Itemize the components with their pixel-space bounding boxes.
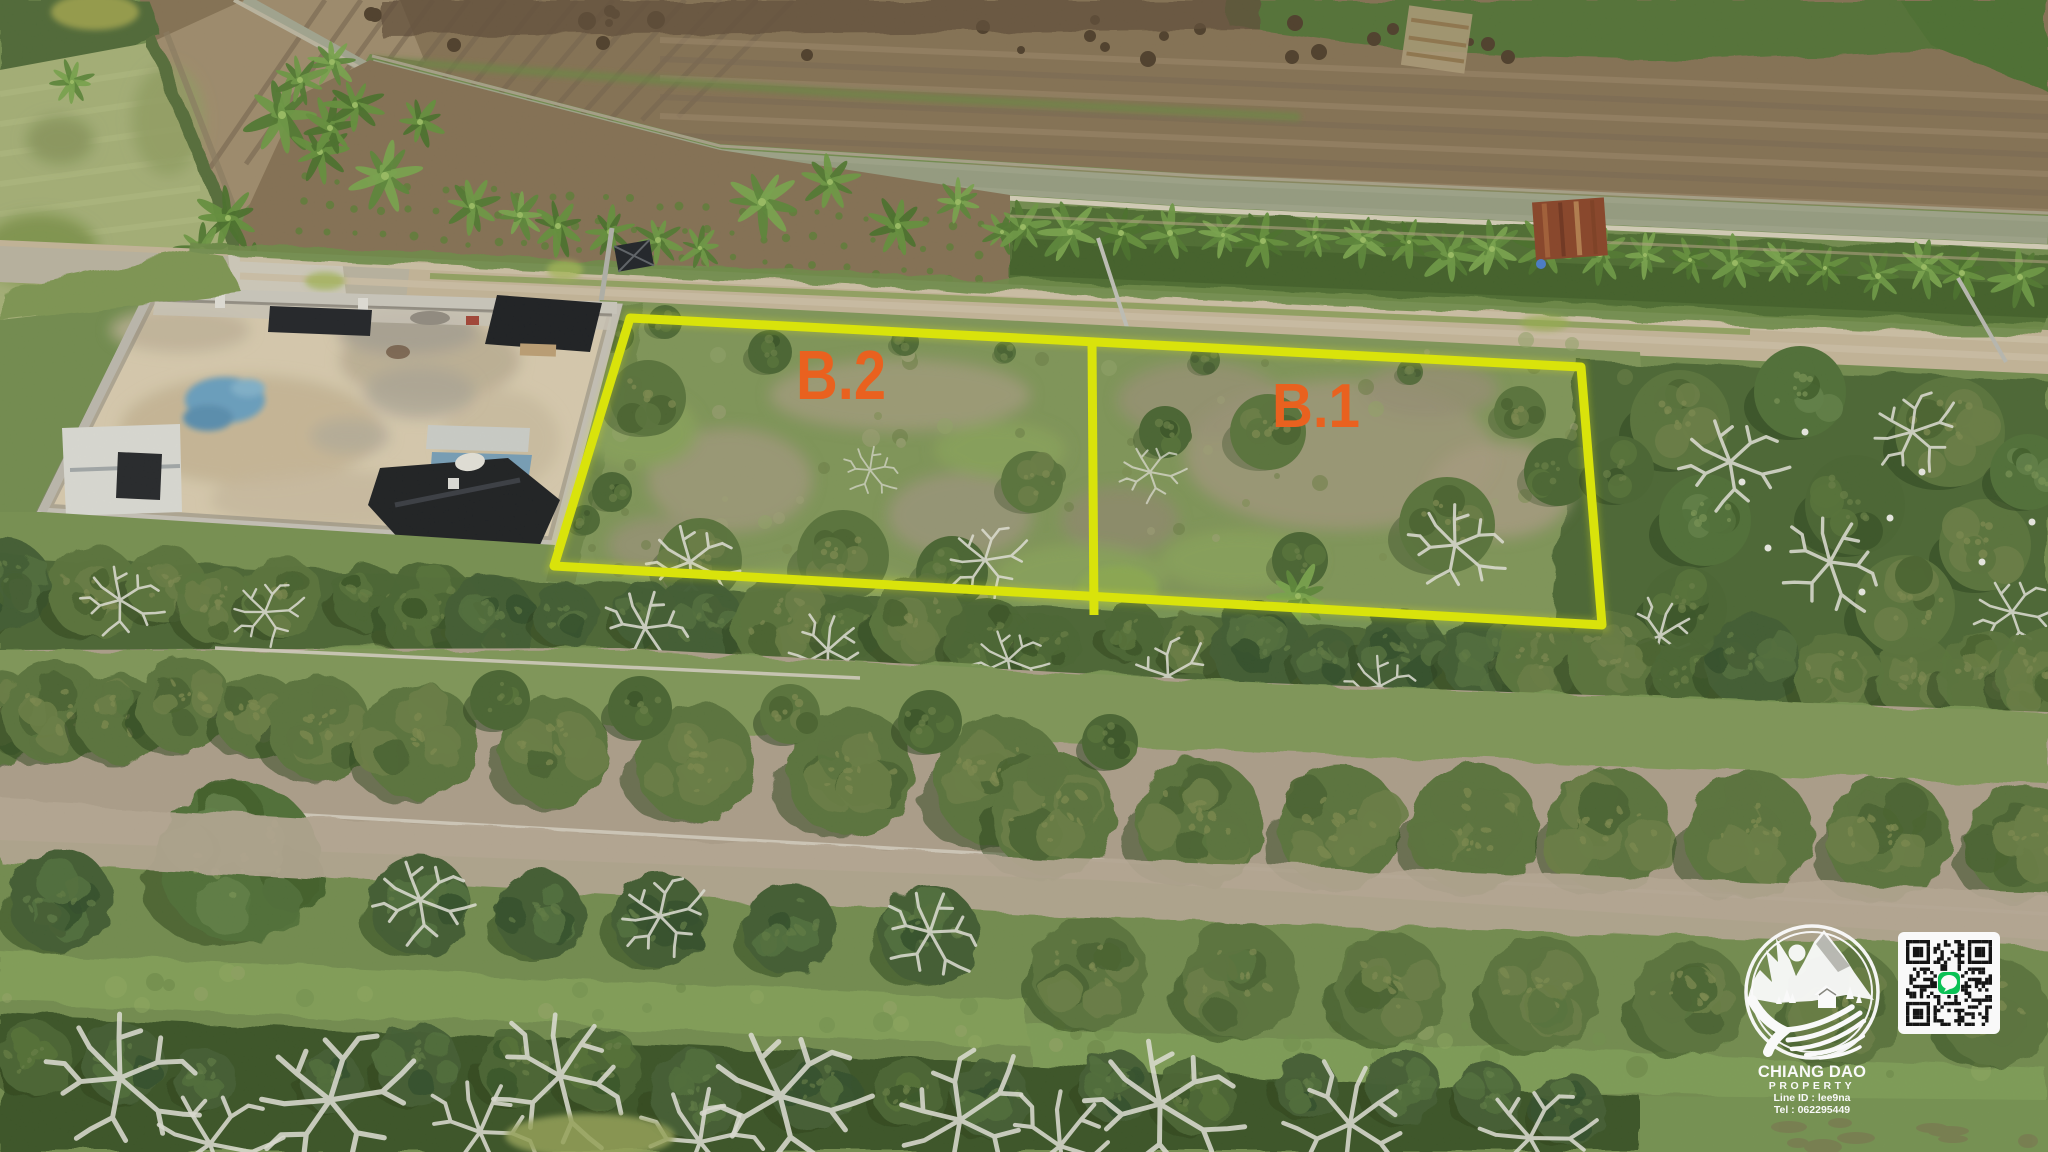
svg-text:Line ID : lee9na: Line ID : lee9na [1773,1092,1850,1104]
svg-text:PROPERTY: PROPERTY [1769,1080,1856,1092]
svg-text:Tel : 062295449: Tel : 062295449 [1774,1104,1850,1116]
svg-text:B.1: B.1 [1272,372,1360,441]
svg-text:B.2: B.2 [796,336,886,414]
svg-text:CHIANG DAO: CHIANG DAO [1758,1063,1866,1081]
